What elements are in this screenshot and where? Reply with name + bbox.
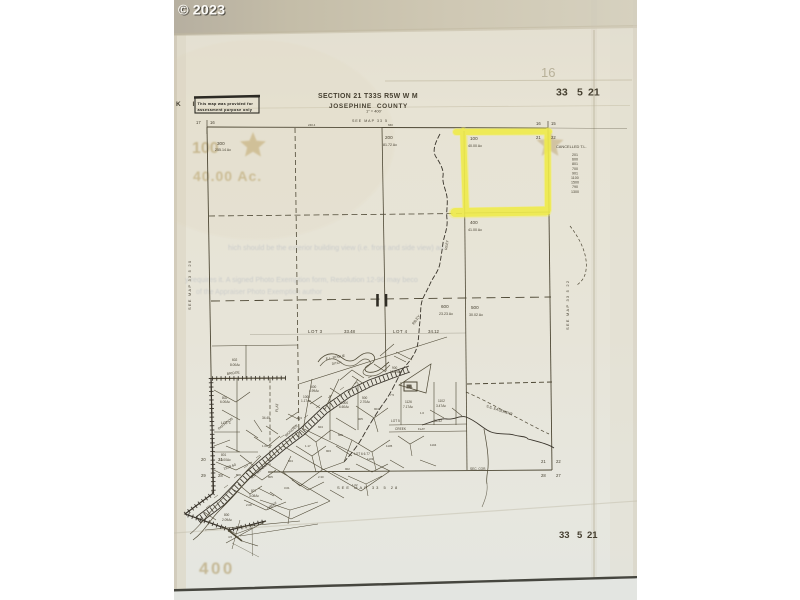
- svg-text:1105: 1105: [386, 444, 393, 448]
- svg-text:800: 800: [224, 513, 230, 517]
- svg-text:34.12: 34.12: [428, 329, 440, 334]
- svg-text:CREEK: CREEK: [395, 427, 407, 431]
- svg-text:hich should be the exterior bu: hich should be the exterior building vie…: [228, 243, 444, 252]
- svg-text:LOT 5: LOT 5: [391, 419, 400, 423]
- svg-text:1.02: 1.02: [352, 483, 358, 487]
- svg-text:SEE MAP 33 5 20: SEE MAP 33 5 20: [187, 260, 192, 310]
- svg-text:602: 602: [232, 358, 238, 362]
- svg-text:SEE MAP 33 5: SEE MAP 33 5: [352, 119, 388, 123]
- svg-text:400: 400: [199, 559, 235, 578]
- svg-text:1.1: 1.1: [240, 524, 244, 528]
- svg-text:1.00: 1.00: [262, 444, 268, 448]
- svg-text:2.08: 2.08: [246, 503, 252, 507]
- svg-text:5: 5: [577, 530, 583, 541]
- svg-text:790: 790: [572, 185, 578, 189]
- svg-text:200: 200: [385, 135, 393, 140]
- svg-text:LOT 3: LOT 3: [308, 329, 323, 334]
- svg-text:8.00Ac: 8.00Ac: [230, 363, 240, 367]
- svg-text:1.6: 1.6: [420, 411, 424, 415]
- svg-text:100: 100: [470, 136, 478, 141]
- svg-text:201: 201: [572, 153, 578, 157]
- svg-text:LOT 4: LOT 4: [393, 329, 408, 334]
- svg-text:2.70Ac: 2.70Ac: [360, 400, 370, 404]
- svg-text:17: 17: [196, 120, 201, 125]
- svg-text:20: 20: [201, 457, 206, 462]
- svg-text:400: 400: [470, 220, 478, 225]
- svg-text:700: 700: [572, 167, 578, 171]
- svg-text:1500: 1500: [571, 181, 579, 185]
- svg-text:21: 21: [536, 135, 541, 140]
- svg-text:y requires it. A signed Photo: y requires it. A signed Photo Exemption …: [185, 275, 418, 284]
- svg-text:34.45: 34.45: [262, 416, 270, 420]
- svg-text:21: 21: [588, 87, 600, 99]
- svg-text:1102: 1102: [438, 399, 445, 403]
- svg-text:LOT 6 6.77: LOT 6 6.77: [354, 452, 370, 456]
- svg-text:1" = 400': 1" = 400': [366, 109, 382, 114]
- svg-text:18.99Ac: 18.99Ac: [390, 370, 402, 374]
- svg-text:6.60Ac: 6.60Ac: [339, 405, 349, 409]
- svg-text:22: 22: [551, 135, 556, 140]
- svg-text:10.00Ac: 10.00Ac: [219, 458, 231, 462]
- svg-text:1126: 1126: [405, 400, 412, 404]
- svg-text:801: 801: [572, 162, 578, 166]
- svg-text:1100: 1100: [571, 176, 579, 180]
- svg-text:CANCELLED T.L.: CANCELLED T.L.: [556, 144, 587, 149]
- svg-text:FLAT: FLAT: [275, 403, 279, 412]
- svg-text:23.23 Ac: 23.23 Ac: [439, 312, 453, 316]
- svg-text:33: 33: [556, 87, 568, 99]
- svg-text:TEL: TEL: [407, 385, 413, 389]
- svg-text:904: 904: [374, 407, 379, 411]
- svg-text:41.00 Ac: 41.00 Ac: [468, 228, 482, 232]
- svg-text:806: 806: [236, 473, 241, 477]
- svg-text:901: 901: [572, 171, 578, 175]
- svg-text:40.00 Ac: 40.00 Ac: [468, 144, 482, 148]
- svg-text:15: 15: [551, 121, 556, 126]
- svg-text:600: 600: [441, 304, 449, 309]
- svg-text:300: 300: [217, 141, 225, 146]
- svg-text:6.00Ac: 6.00Ac: [220, 400, 230, 404]
- svg-text:7.5: 7.5: [390, 393, 394, 397]
- svg-text:4.5: 4.5: [228, 535, 232, 539]
- svg-text:600: 600: [572, 158, 578, 162]
- svg-text:1300: 1300: [571, 190, 579, 194]
- svg-text:16: 16: [210, 120, 215, 125]
- svg-text:30.02 Ac: 30.02 Ac: [469, 313, 483, 317]
- svg-text:21: 21: [587, 530, 598, 541]
- svg-text:5: 5: [577, 87, 583, 99]
- svg-text:255.14 Ac: 255.14 Ac: [215, 148, 231, 152]
- svg-text:This map was provided for: This map was provided for: [198, 102, 254, 106]
- svg-text:603: 603: [297, 416, 302, 420]
- svg-text:903: 903: [326, 449, 331, 453]
- svg-text:29: 29: [201, 473, 206, 478]
- svg-text:33.48: 33.48: [344, 329, 356, 334]
- svg-text:27: 27: [556, 473, 561, 478]
- svg-text:805: 805: [268, 475, 273, 479]
- svg-text:SECTION 21 T33S R5W W M: SECTION 21 T33S R5W W M: [318, 93, 418, 100]
- svg-text:3.08Ac: 3.08Ac: [249, 494, 259, 498]
- svg-text:of the Appraiser Photo Exempti: of the Appraiser Photo Exemption author: [196, 289, 323, 296]
- svg-text:K I: K I: [176, 101, 199, 108]
- svg-text:16: 16: [536, 121, 541, 126]
- svg-text:33: 33: [559, 530, 570, 541]
- svg-text:3.01: 3.01: [284, 486, 290, 490]
- svg-text:28: 28: [541, 473, 546, 478]
- svg-text:34.52: 34.52: [434, 419, 442, 423]
- svg-text:660: 660: [388, 123, 393, 127]
- svg-text:1.17: 1.17: [305, 444, 311, 448]
- svg-text:4.99Ac: 4.99Ac: [309, 389, 319, 393]
- svg-text:assessment purpose only: assessment purpose only: [198, 108, 253, 112]
- svg-text:16: 16: [541, 65, 555, 80]
- svg-text:21: 21: [541, 459, 546, 464]
- svg-text:807: 807: [251, 489, 257, 493]
- svg-text:7.17Ac: 7.17Ac: [403, 405, 413, 409]
- svg-text:500: 500: [471, 305, 479, 310]
- svg-text:902: 902: [345, 467, 350, 471]
- svg-text:22: 22: [556, 459, 561, 464]
- svg-text:804: 804: [288, 459, 293, 463]
- svg-text:81.72 Ac: 81.72 Ac: [383, 143, 397, 147]
- svg-text:1103: 1103: [367, 457, 374, 461]
- svg-text:1104: 1104: [430, 443, 437, 447]
- svg-text:605: 605: [338, 433, 343, 437]
- svg-text:3.47Ac: 3.47Ac: [436, 404, 446, 408]
- svg-text:SEE MAP 33 5 22: SEE MAP 33 5 22: [565, 280, 570, 330]
- svg-text:905: 905: [358, 417, 363, 421]
- svg-text:2.30: 2.30: [318, 475, 324, 479]
- svg-text:28: 28: [218, 473, 223, 478]
- svg-text:2.09Ac: 2.09Ac: [222, 518, 232, 522]
- svg-text:© 2023: © 2023: [178, 2, 225, 18]
- svg-text:FLAT: FLAT: [418, 427, 425, 431]
- svg-text:SEC. COR.: SEC. COR.: [470, 467, 486, 471]
- svg-text:40.00 Ac.: 40.00 Ac.: [193, 168, 262, 184]
- svg-text:240.4: 240.4: [308, 123, 316, 127]
- svg-text:801: 801: [221, 453, 227, 457]
- svg-text:604: 604: [318, 425, 323, 429]
